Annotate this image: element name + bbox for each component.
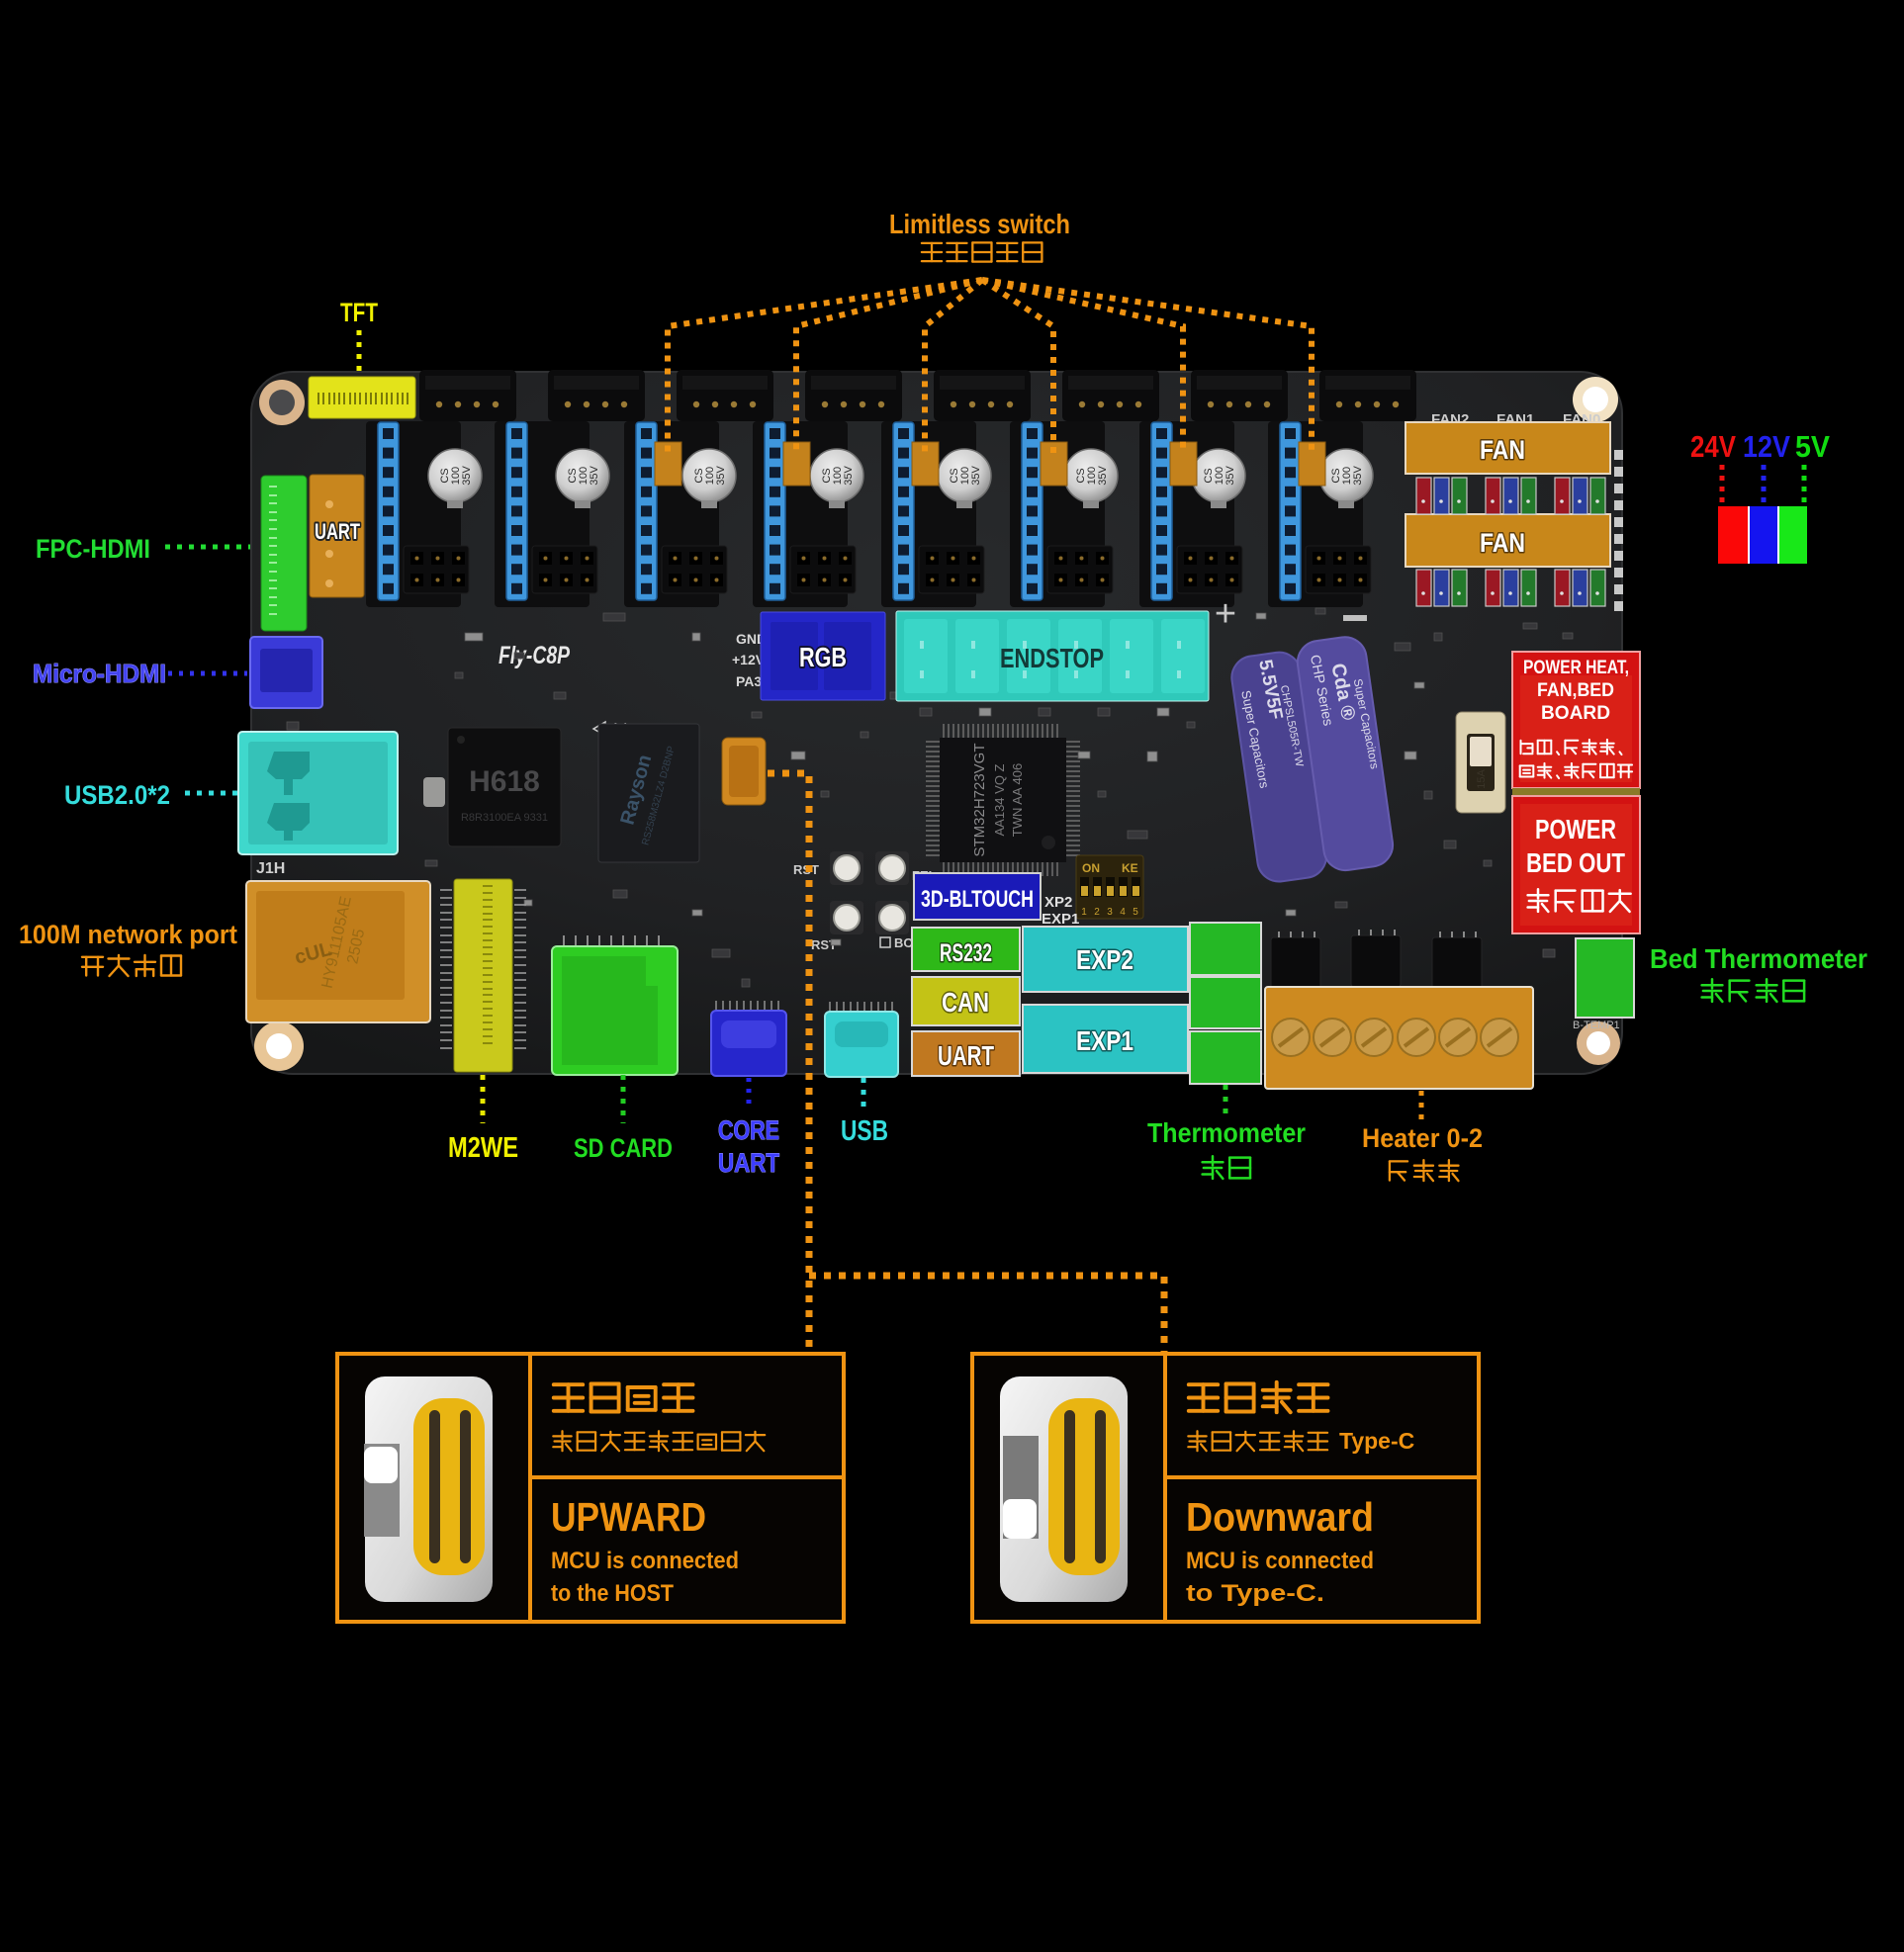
svg-text:POWER: POWER [1535, 814, 1616, 844]
svg-text:35V: 35V [843, 466, 855, 486]
svg-text:ON: ON [1082, 861, 1100, 875]
svg-text:H618: H618 [469, 765, 540, 798]
svg-text:35V: 35V [1352, 466, 1364, 486]
svg-text:FAN: FAN [1480, 528, 1525, 558]
svg-text:FPC-HDMI: FPC-HDMI [36, 534, 150, 564]
svg-text:XP2: XP2 [1044, 894, 1072, 911]
svg-text:MCU is connected: MCU is connected [1186, 1548, 1374, 1574]
svg-text:4: 4 [1120, 907, 1126, 918]
svg-text:J1H: J1H [256, 860, 285, 877]
svg-text:B-TEMP1: B-TEMP1 [1573, 1020, 1620, 1031]
svg-text:35V: 35V [589, 466, 600, 486]
svg-text:M2WE: M2WE [448, 1132, 518, 1164]
svg-text:TWN AA 406: TWN AA 406 [1010, 763, 1025, 837]
svg-text:EXP2: EXP2 [1076, 944, 1133, 975]
svg-text:BED OUT: BED OUT [1526, 847, 1625, 878]
svg-text:12V: 12V [1743, 429, 1790, 464]
svg-text:to Type-C.: to Type-C. [1186, 1580, 1324, 1607]
svg-text:Fly-C8P: Fly-C8P [499, 642, 570, 669]
svg-text:24V: 24V [1690, 429, 1736, 464]
svg-text:Type-C: Type-C [1339, 1428, 1414, 1454]
svg-text:STM32H723VGT: STM32H723VGT [971, 743, 988, 856]
svg-text:3D-BLTOUCH: 3D-BLTOUCH [921, 886, 1034, 913]
svg-text:MCU is connected: MCU is connected [551, 1548, 739, 1574]
svg-text:100M network port: 100M network port [19, 920, 237, 949]
svg-text:Limitless switch: Limitless switch [889, 209, 1070, 239]
svg-text:Micro-HDMI: Micro-HDMI [33, 659, 166, 688]
svg-text:SD CARD: SD CARD [574, 1133, 673, 1163]
svg-text:UART: UART [315, 519, 360, 544]
svg-text:2: 2 [1094, 907, 1100, 918]
svg-text:FAN,BED: FAN,BED [1537, 680, 1614, 701]
svg-text:USB2.0*2: USB2.0*2 [64, 780, 170, 810]
svg-text:FAN: FAN [1480, 435, 1525, 465]
svg-text:to the HOST: to the HOST [551, 1580, 674, 1607]
svg-text:35V: 35V [970, 466, 982, 486]
svg-text:TFT: TFT [340, 298, 378, 327]
svg-text:+: + [1215, 593, 1236, 635]
svg-text:35V: 35V [461, 466, 473, 486]
svg-text:3: 3 [1107, 907, 1113, 918]
svg-text:AA134 VQ Z: AA134 VQ Z [992, 763, 1007, 836]
svg-text:35V: 35V [1097, 466, 1109, 486]
svg-text:35V: 35V [1224, 466, 1236, 486]
svg-text:15A: 15A [1476, 769, 1488, 789]
svg-text:R8R3100EA 9331: R8R3100EA 9331 [461, 812, 548, 824]
svg-text:Downward: Downward [1186, 1494, 1374, 1540]
svg-text:ENDSTOP: ENDSTOP [1000, 643, 1104, 673]
svg-text:UPWARD: UPWARD [551, 1494, 706, 1540]
svg-text:UART: UART [718, 1148, 779, 1178]
svg-text:PA3: PA3 [736, 673, 762, 689]
svg-text:CORE: CORE [718, 1115, 779, 1145]
svg-text:EXP1: EXP1 [1042, 911, 1079, 928]
svg-text:POWER HEAT,: POWER HEAT, [1523, 658, 1629, 678]
svg-text:KE: KE [1122, 861, 1138, 875]
svg-text:EXP1: EXP1 [1076, 1025, 1133, 1056]
svg-text:UART: UART [938, 1040, 994, 1071]
svg-text:5: 5 [1133, 907, 1138, 918]
svg-text:RS232: RS232 [940, 939, 992, 967]
svg-text:Heater 0-2: Heater 0-2 [1362, 1123, 1483, 1153]
svg-text:35V: 35V [715, 466, 727, 486]
svg-text:Thermometer: Thermometer [1147, 1117, 1306, 1148]
svg-text:BOARD: BOARD [1541, 703, 1610, 724]
svg-text:CAN: CAN [942, 987, 989, 1018]
svg-text:1: 1 [1081, 907, 1087, 918]
svg-text:USB: USB [841, 1115, 888, 1147]
svg-text:Bed Thermometer: Bed Thermometer [1650, 943, 1867, 974]
svg-text:5V: 5V [1795, 429, 1830, 464]
svg-text:RGB: RGB [799, 642, 847, 672]
